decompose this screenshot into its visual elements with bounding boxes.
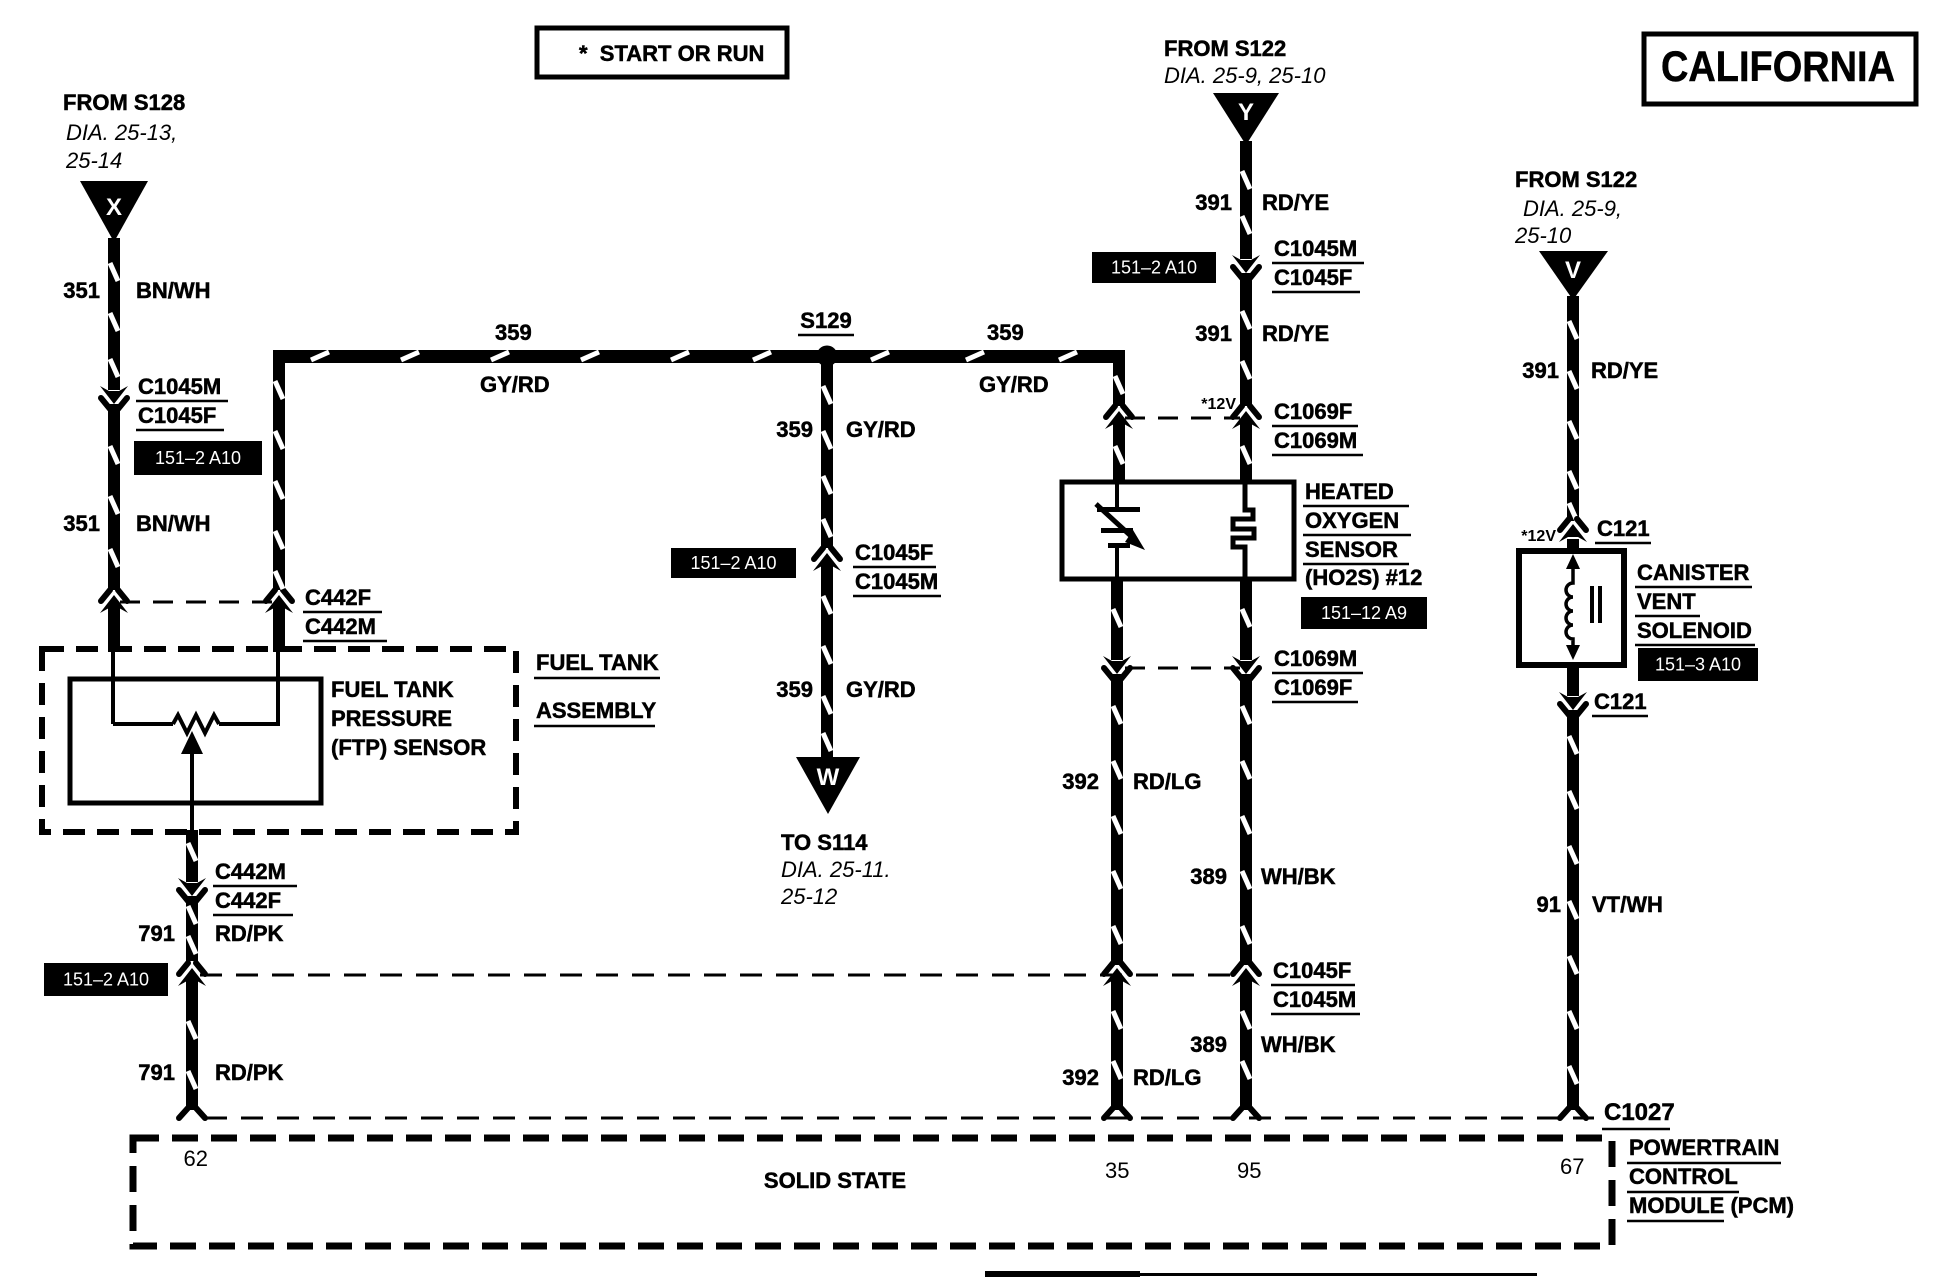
svg-text:359: 359 bbox=[987, 320, 1024, 345]
svg-text:392: 392 bbox=[1062, 769, 1099, 794]
svg-text:X: X bbox=[106, 194, 122, 221]
svg-text:SOLID STATE: SOLID STATE bbox=[764, 1168, 906, 1193]
svg-text:SENSOR: SENSOR bbox=[1305, 537, 1398, 562]
svg-text:151–12 A9: 151–12 A9 bbox=[1321, 603, 1407, 623]
svg-text:RD/LG: RD/LG bbox=[1133, 769, 1201, 794]
svg-text:S129: S129 bbox=[800, 308, 851, 333]
svg-text:35: 35 bbox=[1105, 1158, 1129, 1183]
svg-text:FUEL TANK: FUEL TANK bbox=[536, 650, 659, 675]
svg-text:95: 95 bbox=[1237, 1158, 1261, 1183]
svg-text:GY/RD: GY/RD bbox=[846, 417, 916, 442]
svg-text:C121: C121 bbox=[1597, 516, 1650, 541]
svg-text:359: 359 bbox=[495, 320, 532, 345]
svg-text:151–2 A10: 151–2 A10 bbox=[63, 970, 149, 990]
svg-text:359: 359 bbox=[776, 677, 813, 702]
svg-text:GY/RD: GY/RD bbox=[979, 372, 1049, 397]
svg-text:POWERTRAIN: POWERTRAIN bbox=[1629, 1135, 1779, 1160]
svg-text:391: 391 bbox=[1195, 190, 1232, 215]
svg-text:GY/RD: GY/RD bbox=[846, 677, 916, 702]
svg-text:DIA. 25-9,: DIA. 25-9, bbox=[1523, 196, 1622, 221]
svg-text:25-14: 25-14 bbox=[65, 148, 122, 173]
svg-text:FROM S122: FROM S122 bbox=[1515, 167, 1637, 192]
svg-text:V: V bbox=[1565, 257, 1581, 284]
svg-text:151–2 A10: 151–2 A10 bbox=[690, 553, 776, 573]
svg-text:MODULE (PCM): MODULE (PCM) bbox=[1629, 1193, 1794, 1218]
svg-text:*12V: *12V bbox=[1521, 528, 1556, 545]
svg-text:C1045M: C1045M bbox=[855, 569, 938, 594]
svg-text:RD/LG: RD/LG bbox=[1133, 1065, 1201, 1090]
svg-text:C1069M: C1069M bbox=[1274, 428, 1357, 453]
svg-text:C1045M: C1045M bbox=[1273, 987, 1356, 1012]
svg-text:VENT: VENT bbox=[1637, 589, 1696, 614]
svg-text:WH/BK: WH/BK bbox=[1261, 1032, 1336, 1057]
svg-text:389: 389 bbox=[1190, 864, 1227, 889]
svg-text:151–3 A10: 151–3 A10 bbox=[1655, 655, 1741, 675]
svg-text:RD/PK: RD/PK bbox=[215, 1060, 284, 1085]
svg-text:Y: Y bbox=[1238, 99, 1254, 126]
svg-text:C442F: C442F bbox=[215, 888, 281, 913]
svg-text:BN/WH: BN/WH bbox=[136, 278, 211, 303]
svg-text:DIA. 25-9, 25-10: DIA. 25-9, 25-10 bbox=[1164, 63, 1326, 88]
svg-text:C1027: C1027 bbox=[1604, 1099, 1675, 1126]
svg-text:C442M: C442M bbox=[215, 859, 286, 884]
svg-text:*12V: *12V bbox=[1201, 396, 1236, 413]
svg-text:C1069M: C1069M bbox=[1274, 646, 1357, 671]
svg-text:FROM S122: FROM S122 bbox=[1164, 36, 1286, 61]
svg-text:(FTP) SENSOR: (FTP) SENSOR bbox=[331, 735, 486, 760]
svg-text:SOLENOID: SOLENOID bbox=[1637, 618, 1752, 643]
svg-text:389: 389 bbox=[1190, 1032, 1227, 1057]
svg-text:ASSEMBLY: ASSEMBLY bbox=[536, 698, 657, 723]
svg-text:RD/YE: RD/YE bbox=[1262, 321, 1329, 346]
svg-text:25-10: 25-10 bbox=[1514, 223, 1572, 248]
svg-text:DIA. 25-13,: DIA. 25-13, bbox=[66, 120, 177, 145]
svg-text:FUEL TANK: FUEL TANK bbox=[331, 677, 454, 702]
svg-text:WH/BK: WH/BK bbox=[1261, 864, 1336, 889]
svg-text:151–2 A10: 151–2 A10 bbox=[1111, 258, 1197, 278]
svg-text:791: 791 bbox=[138, 921, 175, 946]
svg-text:25-12: 25-12 bbox=[780, 884, 837, 909]
svg-text:391: 391 bbox=[1195, 321, 1232, 346]
svg-text:791: 791 bbox=[138, 1060, 175, 1085]
svg-text:(HO2S) #12: (HO2S) #12 bbox=[1305, 565, 1422, 590]
svg-text:HEATED: HEATED bbox=[1305, 479, 1394, 504]
svg-text:VT/WH: VT/WH bbox=[1592, 892, 1663, 917]
svg-text:C1045F: C1045F bbox=[855, 540, 933, 565]
svg-text:CALIFORNIA: CALIFORNIA bbox=[1661, 43, 1895, 91]
svg-text:392: 392 bbox=[1062, 1065, 1099, 1090]
svg-text:391: 391 bbox=[1522, 358, 1559, 383]
svg-text:RD/YE: RD/YE bbox=[1591, 358, 1658, 383]
svg-text:CANISTER: CANISTER bbox=[1637, 560, 1750, 585]
svg-text:PRESSURE: PRESSURE bbox=[331, 706, 452, 731]
svg-text:C1045F: C1045F bbox=[1273, 958, 1351, 983]
svg-text:C442M: C442M bbox=[305, 614, 376, 639]
svg-text:67: 67 bbox=[1560, 1154, 1584, 1179]
svg-text:RD/PK: RD/PK bbox=[215, 921, 284, 946]
svg-text:C1045F: C1045F bbox=[138, 403, 216, 428]
svg-text:351: 351 bbox=[63, 278, 100, 303]
svg-text:151–2 A10: 151–2 A10 bbox=[155, 448, 241, 468]
svg-text:C1069F: C1069F bbox=[1274, 399, 1352, 424]
svg-text:TO S114: TO S114 bbox=[781, 830, 868, 855]
svg-text:62: 62 bbox=[184, 1146, 208, 1171]
svg-text:W: W bbox=[817, 764, 840, 791]
svg-text:OXYGEN: OXYGEN bbox=[1305, 508, 1399, 533]
svg-text:351: 351 bbox=[63, 511, 100, 536]
svg-text:C1045M: C1045M bbox=[1274, 236, 1357, 261]
svg-text:C442F: C442F bbox=[305, 585, 371, 610]
svg-text:359: 359 bbox=[776, 417, 813, 442]
svg-text:GY/RD: GY/RD bbox=[480, 372, 550, 397]
svg-text:DIA. 25-11.: DIA. 25-11. bbox=[781, 857, 891, 882]
svg-text:C1045F: C1045F bbox=[1274, 265, 1352, 290]
svg-text:BN/WH: BN/WH bbox=[136, 511, 211, 536]
svg-text:CONTROL: CONTROL bbox=[1629, 1164, 1738, 1189]
svg-text:RD/YE: RD/YE bbox=[1262, 190, 1329, 215]
svg-text:91: 91 bbox=[1537, 892, 1561, 917]
svg-text:* START OR RUN: * START OR RUN bbox=[579, 41, 764, 66]
svg-text:FROM S128: FROM S128 bbox=[63, 90, 185, 115]
svg-text:C1069F: C1069F bbox=[1274, 675, 1352, 700]
svg-text:C1045M: C1045M bbox=[138, 374, 221, 399]
svg-text:C121: C121 bbox=[1594, 689, 1647, 714]
